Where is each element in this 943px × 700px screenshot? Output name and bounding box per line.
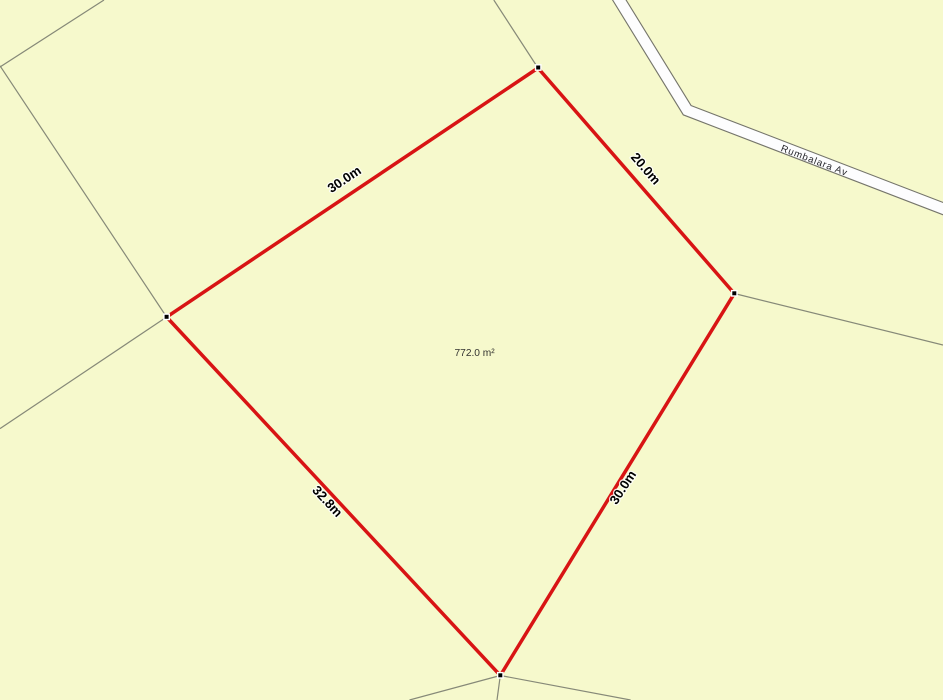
svg-text:772.0 m²: 772.0 m² bbox=[454, 348, 495, 359]
